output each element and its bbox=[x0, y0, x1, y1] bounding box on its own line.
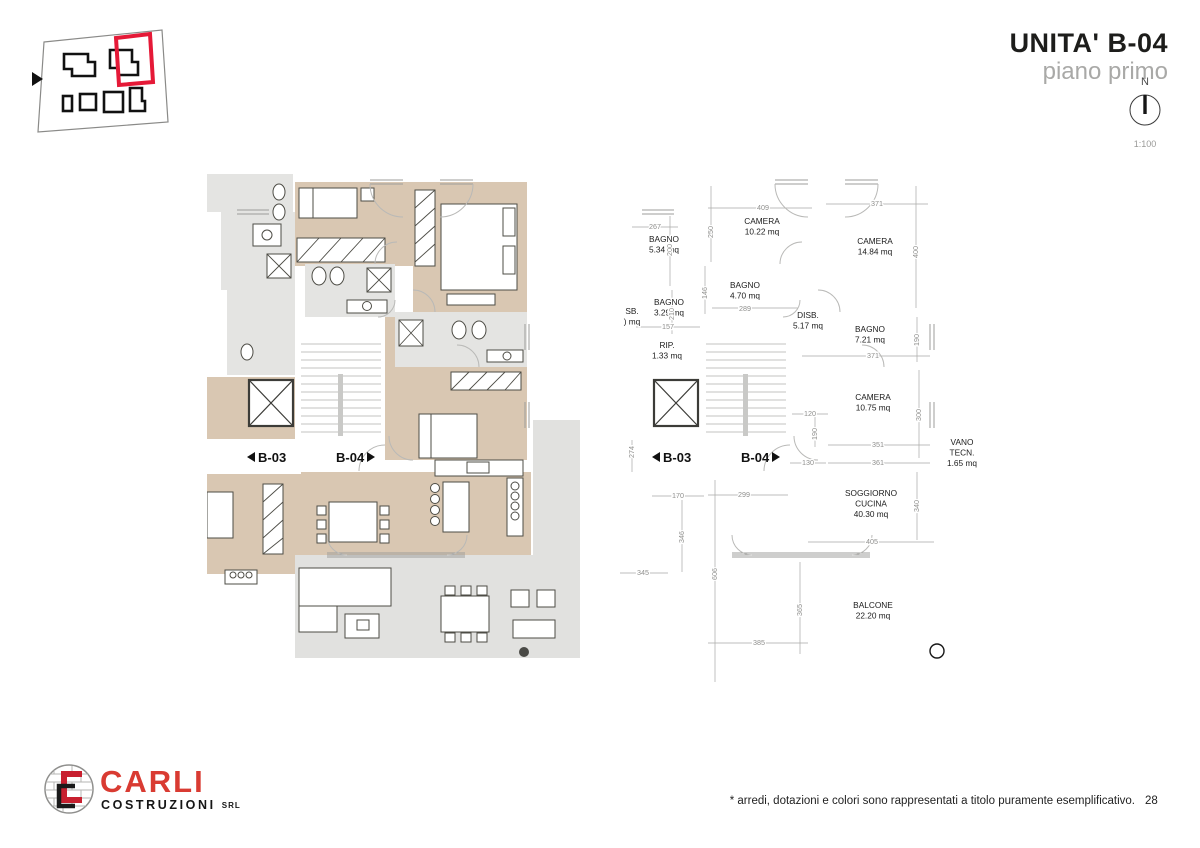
room-label: SB. bbox=[625, 306, 638, 316]
dimension-label: 157 bbox=[662, 322, 674, 331]
dimension-label: 371 bbox=[871, 199, 883, 208]
technical-plan: CAMERA10.22 mqCAMERA14.84 mqBAGNO5.34 mq… bbox=[612, 162, 997, 697]
dimension-label: 299 bbox=[738, 490, 750, 499]
room-label: BAGNO bbox=[654, 297, 685, 307]
dimension-label: 267 bbox=[649, 222, 661, 231]
room-label: BAGNO bbox=[649, 234, 680, 244]
logo-company-sub: COSTRUZIONI SRL bbox=[101, 798, 241, 812]
dimension-label: 130 bbox=[802, 458, 814, 467]
room-label: 1.33 mq bbox=[652, 351, 682, 361]
room-label: BAGNO bbox=[855, 324, 886, 334]
room-label: SOGGIORNO bbox=[845, 488, 898, 498]
room-label: 7.21 mq bbox=[855, 335, 885, 345]
dimension-label: 274 bbox=[627, 446, 636, 458]
room-label: 5.17 mq bbox=[793, 321, 823, 331]
room-label: RIP. bbox=[659, 340, 674, 350]
dimension-label: 345 bbox=[637, 568, 649, 577]
dimension-label: 409 bbox=[757, 203, 769, 212]
page-title: UNITA' B-04 bbox=[0, 28, 1168, 59]
room-label: ) mq bbox=[624, 317, 641, 327]
dimension-label: 200 bbox=[665, 244, 674, 256]
room-label: BAGNO bbox=[730, 280, 761, 290]
north-label: N bbox=[1095, 76, 1195, 88]
room-label: DISB. bbox=[797, 310, 819, 320]
room-label: 14.84 mq bbox=[858, 247, 893, 257]
dimension-label: 400 bbox=[911, 246, 920, 258]
page-subtitle: piano primo bbox=[0, 58, 1168, 86]
room-label: 1.65 mq bbox=[947, 458, 977, 468]
room-label: BALCONE bbox=[853, 600, 893, 610]
room-label: 40.30 mq bbox=[854, 509, 889, 519]
balcony-drain bbox=[930, 644, 944, 658]
dimension-label: 250 bbox=[706, 226, 715, 238]
dimension-label: 351 bbox=[872, 440, 884, 449]
page-number: 28 bbox=[1145, 795, 1175, 807]
room-label: 22.20 mq bbox=[856, 611, 891, 621]
disclaimer-text: * arredi, dotazioni e colori sono rappre… bbox=[640, 795, 1135, 807]
room-label: CAMERA bbox=[855, 392, 891, 402]
room-label: 4.70 mq bbox=[730, 291, 760, 301]
logo-costruzioni: COSTRUZIONI bbox=[101, 798, 216, 812]
dimension-label: 365 bbox=[795, 604, 804, 616]
landing-labels: B-03 B-04 bbox=[652, 450, 780, 465]
dimension-label: 146 bbox=[700, 287, 709, 299]
dimension-label: 405 bbox=[866, 537, 878, 546]
room-label: CAMERA bbox=[857, 236, 893, 246]
dimension-label: 361 bbox=[872, 458, 884, 467]
logo-company-name: CARLI bbox=[100, 764, 205, 800]
furnished-plan: B-03 B-04 bbox=[207, 162, 592, 697]
dimension-label: 120 bbox=[804, 409, 816, 418]
north-indicator: N 1:100 bbox=[1095, 76, 1195, 149]
dimension-label: 385 bbox=[753, 638, 765, 647]
dimension-label: 289 bbox=[739, 304, 751, 313]
scale-label: 1:100 bbox=[1095, 139, 1195, 149]
dimension-label: 371 bbox=[867, 351, 879, 360]
company-logo-emblem bbox=[42, 762, 96, 816]
room-label: 10.22 mq bbox=[745, 227, 780, 237]
unit-label-left: B-03 bbox=[258, 450, 286, 465]
dimension-label: 190 bbox=[810, 428, 819, 440]
room-label: VANO bbox=[951, 437, 974, 447]
room-label: TECN. bbox=[950, 448, 975, 458]
dimension-label: 340 bbox=[912, 500, 921, 512]
room-label: CAMERA bbox=[744, 216, 780, 226]
unit-label-right: B-04 bbox=[336, 450, 365, 465]
dimension-label: 190 bbox=[912, 334, 921, 346]
unit-label-right: B-04 bbox=[741, 450, 770, 465]
room-label: 10.75 mq bbox=[856, 403, 891, 413]
logo-srl: SRL bbox=[222, 801, 241, 810]
dimension-label: 300 bbox=[914, 409, 923, 421]
dimension-label: 346 bbox=[677, 531, 686, 543]
unit-label-left: B-03 bbox=[663, 450, 691, 465]
dimension-label: 606 bbox=[710, 568, 719, 580]
dimension-label: 170 bbox=[672, 491, 684, 500]
dimension-label: 210 bbox=[667, 308, 676, 320]
north-arrow-icon bbox=[1123, 88, 1167, 132]
landing-labels: B-03 B-04 bbox=[247, 450, 375, 465]
room-label: CUCINA bbox=[855, 499, 887, 509]
